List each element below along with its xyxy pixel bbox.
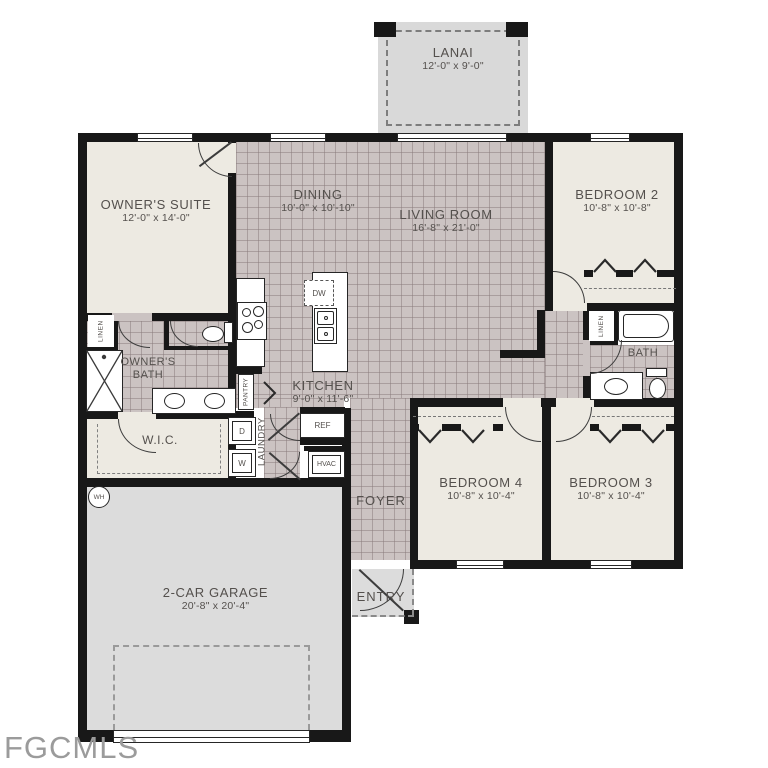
entry-porch-outline (412, 569, 414, 615)
closet-wall-stub (622, 424, 641, 431)
cooktop-burner (242, 322, 253, 333)
owners-suite-label: OWNER'S SUITE 12'-0" x 14'-0" (100, 198, 212, 225)
exterior-wall-bottom-bedrooms (410, 560, 683, 569)
living-room-label: LIVING ROOM 16'-8" x 21'-0" (392, 208, 500, 235)
room-dims: 10'-8" x 10'-4" (422, 491, 540, 503)
bedroom4-window (456, 560, 504, 569)
water-heater: WH (88, 486, 110, 508)
pantry-label: PANTRY (238, 374, 254, 410)
hall-tile (545, 310, 583, 398)
garage-wall-top (86, 478, 344, 487)
room-name: BEDROOM 3 (552, 476, 670, 491)
closet-wall-stub (442, 424, 461, 431)
bedroom4-closet-shelf (413, 416, 501, 417)
room-dims: 9'-0" x 11'-6" (268, 394, 378, 406)
room-name: DINING (262, 188, 374, 203)
toilet-room-wall (164, 346, 236, 350)
bedroom3-doorway (556, 398, 594, 407)
bedroom2-doorway (553, 303, 587, 311)
water-heater-label: WH (94, 494, 105, 501)
bedroom3-label: BEDROOM 3 10'-8" x 10'-4" (552, 476, 670, 503)
ref-nook-wall-bottom (300, 438, 345, 445)
bedroom4-wall-left (410, 398, 418, 560)
owners-bath-label: OWNER'S BATH (110, 356, 186, 381)
cooktop-burner (254, 320, 263, 329)
room-dims: 16'-8" x 21'-0" (392, 223, 500, 235)
closet-wall-stub (493, 424, 503, 431)
bedroom34-divider-wall (542, 407, 551, 560)
room-dims: 12'-0" x 9'-0" (398, 61, 508, 73)
entry-porch-outline (352, 615, 414, 617)
room-name: BEDROOM 2 (558, 188, 676, 203)
closet-wall-stub (616, 270, 633, 277)
dishwasher: DW (304, 280, 334, 306)
washer-label-box: W (232, 453, 252, 473)
entry-doorway (358, 560, 404, 569)
closet-bifold-icon (640, 428, 666, 444)
foyer-label: FOYER (352, 494, 410, 509)
garage-label: 2-CAR GARAGE 20'-8" x 20'-4" (138, 586, 293, 613)
garage-door (113, 730, 310, 743)
toilet-tank (224, 322, 233, 343)
room-dims: 10'-8" x 10'-4" (552, 491, 670, 503)
lanai-label: LANAI 12'-0" x 9'-0" (398, 46, 508, 73)
lanai-corner-post (506, 22, 528, 37)
laundry-label: LAUNDRY (254, 414, 270, 470)
bedroom3-closet-shelf (592, 416, 674, 417)
closet-bifold-icon (460, 428, 486, 444)
toilet-tank (646, 368, 667, 377)
linen-label: LINEN (88, 315, 114, 347)
room-dims: 10'-8" x 10'-8" (558, 203, 676, 215)
foyer-tile (350, 398, 410, 560)
owners-suite-window (270, 133, 326, 142)
dishwasher-label: DW (312, 289, 325, 298)
toilet-room-wall (164, 321, 169, 348)
room-name: LIVING ROOM (392, 208, 500, 223)
hvac-unit: HVAC (308, 451, 345, 478)
bedroom3-window (590, 560, 632, 569)
main-living-tile-floor (236, 141, 545, 398)
dining-label: DINING 10'-0" x 10'-10" (262, 188, 374, 215)
bedroom2-closet-shelf (584, 288, 676, 289)
hvac-label-box: HVAC (312, 455, 341, 474)
dryer-label: D (239, 427, 245, 436)
closet-bifold-icon (592, 258, 618, 274)
bedroom4-label: BEDROOM 4 10'-8" x 10'-4" (422, 476, 540, 503)
owners-suite-window (137, 133, 193, 142)
bedroom2-wall-left (545, 133, 553, 303)
washer-label: W (238, 459, 246, 468)
toilet-bowl (649, 378, 666, 399)
room-name: OWNER'S BATH (120, 356, 175, 381)
garage-driveway-outline (113, 645, 310, 730)
mls-watermark: FGCMLS (4, 730, 139, 766)
wic-label: W.I.C. (128, 434, 192, 448)
closet-bifold-icon (632, 258, 658, 274)
sink-drain (324, 316, 328, 320)
wic-shelf-outline (97, 424, 221, 474)
bedroom4-doorway (503, 398, 541, 407)
room-name: LANAI (398, 46, 508, 61)
lanai-sliding-door (397, 133, 507, 142)
bedroom2-window (590, 133, 630, 142)
bath-sink (604, 378, 628, 395)
vanity-sink (164, 393, 185, 409)
owners-bath-doorway (112, 313, 152, 321)
dryer-label-box: D (232, 421, 252, 441)
closet-wall-stub (657, 270, 676, 277)
bath-label: BATH (622, 347, 664, 360)
refrigerator-label: REF (315, 421, 331, 430)
room-name: 2-CAR GARAGE (138, 586, 293, 601)
room-name: OWNER'S SUITE (100, 198, 212, 213)
cooktop-burner (253, 306, 264, 317)
bedroom2-label: BEDROOM 2 10'-8" x 10'-8" (558, 188, 676, 215)
closet-bifold-icon (417, 428, 443, 444)
closet-bifold-icon (597, 428, 623, 444)
exterior-wall-left (78, 133, 87, 742)
kitchen-label: KITCHEN 9'-0" x 11'-6" (268, 379, 378, 406)
living-hall-wall-stub-v (537, 310, 545, 358)
washer: W (228, 449, 256, 477)
hvac-label: HVAC (317, 461, 336, 468)
room-name: KITCHEN (268, 379, 378, 394)
vanity-sink (204, 393, 225, 409)
lanai-corner-post (374, 22, 396, 37)
owners-suite-floor (87, 142, 228, 313)
cooktop-burner (242, 308, 251, 317)
refrigerator: REF (300, 413, 345, 438)
room-dims: 12'-0" x 14'-0" (100, 213, 212, 225)
floor-plan: LANAI 12'-0" x 9'-0" (0, 0, 768, 768)
bath-doorway (583, 340, 590, 376)
closet-wall-stub (666, 424, 675, 431)
sink-drain (324, 332, 328, 336)
room-name: BEDROOM 4 (422, 476, 540, 491)
pantry-wall-top (236, 367, 262, 374)
room-dims: 20'-8" x 20'-4" (138, 601, 293, 613)
bath-linen-label: LINEN (589, 311, 614, 341)
entry-label: ENTRY (350, 590, 412, 605)
bathtub-basin (623, 314, 669, 338)
dryer: D (228, 417, 256, 445)
room-dims: 10'-0" x 10'-10" (262, 203, 374, 215)
wic-doorway (118, 412, 156, 419)
toilet-bowl (202, 326, 224, 342)
